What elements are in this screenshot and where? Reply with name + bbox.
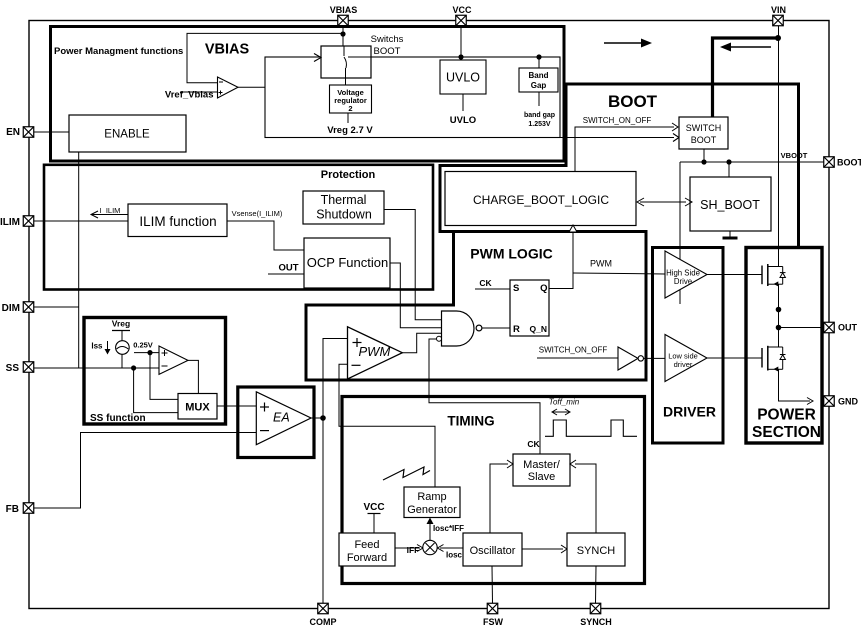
svg-text:Slave: Slave bbox=[528, 471, 556, 483]
svg-text:SWITCH_ON_OFF: SWITCH_ON_OFF bbox=[539, 346, 608, 355]
svg-text:OCP Function: OCP Function bbox=[307, 255, 388, 270]
svg-text:TIMING: TIMING bbox=[447, 414, 494, 429]
svg-text:S: S bbox=[513, 283, 519, 294]
svg-text:PWM: PWM bbox=[359, 344, 391, 359]
svg-text:COMP: COMP bbox=[310, 617, 337, 627]
svg-text:ILIM: ILIM bbox=[0, 217, 20, 228]
svg-text:Power Managment functions: Power Managment functions bbox=[54, 46, 183, 57]
svg-text:R: R bbox=[513, 324, 520, 335]
svg-text:BOOT: BOOT bbox=[608, 92, 658, 111]
svg-text:VBOOT: VBOOT bbox=[781, 151, 808, 160]
svg-text:Drive: Drive bbox=[674, 277, 692, 286]
svg-text:EN: EN bbox=[6, 127, 20, 138]
svg-text:UVLO: UVLO bbox=[446, 71, 480, 85]
svg-text:POWER: POWER bbox=[757, 407, 816, 424]
svg-text:Feed: Feed bbox=[354, 539, 379, 551]
svg-text:Q: Q bbox=[540, 283, 547, 294]
svg-text:band gap: band gap bbox=[524, 112, 555, 119]
svg-text:FSW: FSW bbox=[483, 617, 504, 627]
svg-text:OUT: OUT bbox=[278, 263, 298, 274]
svg-text:OUT: OUT bbox=[838, 323, 858, 333]
svg-text:VIN: VIN bbox=[771, 5, 786, 15]
svg-text:SS function: SS function bbox=[90, 413, 146, 424]
svg-text:Vreg 2.7 V: Vreg 2.7 V bbox=[327, 125, 373, 136]
svg-text:SWITCH_ON_OFF: SWITCH_ON_OFF bbox=[583, 116, 652, 125]
svg-text:driver: driver bbox=[674, 360, 693, 369]
svg-text:1.253V: 1.253V bbox=[528, 121, 551, 128]
svg-text:DIM: DIM bbox=[2, 303, 20, 314]
svg-text:Protection: Protection bbox=[321, 169, 376, 181]
svg-text:2: 2 bbox=[348, 104, 352, 113]
svg-text:EA: EA bbox=[273, 411, 290, 425]
svg-text:Vsense(I_ILIM): Vsense(I_ILIM) bbox=[232, 209, 283, 218]
svg-text:Toff_min: Toff_min bbox=[549, 398, 580, 407]
svg-text:ENABLE: ENABLE bbox=[104, 129, 150, 141]
svg-text:SYNCH: SYNCH bbox=[580, 617, 612, 627]
svg-text:MUX: MUX bbox=[185, 402, 210, 414]
svg-text:UVLO: UVLO bbox=[450, 115, 476, 126]
svg-text:CK: CK bbox=[527, 439, 540, 449]
svg-text:Switchs: Switchs bbox=[371, 34, 404, 45]
svg-text:SWITCH: SWITCH bbox=[686, 123, 722, 133]
svg-text:Forward: Forward bbox=[347, 552, 387, 564]
svg-text:PWM: PWM bbox=[590, 259, 612, 269]
svg-text:Iosc*IFF: Iosc*IFF bbox=[433, 524, 464, 533]
svg-text:Vref_Vbias: Vref_Vbias bbox=[165, 90, 214, 101]
svg-text:VBIAS: VBIAS bbox=[330, 5, 358, 15]
svg-text:Ramp: Ramp bbox=[417, 491, 446, 503]
svg-text:CK: CK bbox=[479, 278, 492, 288]
svg-text:GND: GND bbox=[838, 397, 859, 407]
svg-text:ILIM function: ILIM function bbox=[139, 214, 216, 229]
svg-text:BOOT: BOOT bbox=[691, 135, 717, 145]
svg-text:Band: Band bbox=[529, 71, 549, 80]
svg-text:Q_N: Q_N bbox=[530, 324, 547, 334]
svg-text:BOOT: BOOT bbox=[837, 158, 861, 168]
svg-text:SH_BOOT: SH_BOOT bbox=[700, 198, 760, 212]
svg-text:Oscillator: Oscillator bbox=[470, 545, 516, 557]
svg-text:0.25V: 0.25V bbox=[133, 341, 153, 350]
svg-text:DRIVER: DRIVER bbox=[663, 404, 716, 420]
svg-text:Gap: Gap bbox=[531, 81, 547, 90]
svg-text:BOOT: BOOT bbox=[374, 46, 401, 57]
svg-text:FB: FB bbox=[6, 504, 19, 515]
svg-text:VBIAS: VBIAS bbox=[205, 42, 250, 58]
svg-text:SS: SS bbox=[6, 363, 20, 374]
svg-text:SYNCH: SYNCH bbox=[577, 545, 616, 557]
svg-text:Iosc: Iosc bbox=[446, 551, 463, 560]
svg-text:VCC: VCC bbox=[452, 5, 472, 15]
svg-text:IFF: IFF bbox=[407, 545, 420, 555]
svg-text:SECTION: SECTION bbox=[752, 424, 821, 441]
svg-text:I_ILIM: I_ILIM bbox=[100, 206, 121, 215]
svg-text:Master/: Master/ bbox=[523, 459, 561, 471]
svg-text:VCC: VCC bbox=[363, 502, 384, 513]
svg-text:Thermal: Thermal bbox=[321, 193, 367, 207]
svg-text:PWM LOGIC: PWM LOGIC bbox=[470, 246, 552, 262]
svg-text:Shutdown: Shutdown bbox=[316, 208, 372, 222]
svg-text:Vreg: Vreg bbox=[112, 319, 130, 329]
svg-text:Iss: Iss bbox=[91, 342, 103, 351]
svg-text:Generator: Generator bbox=[407, 504, 457, 516]
svg-text:CHARGE_BOOT_LOGIC: CHARGE_BOOT_LOGIC bbox=[473, 193, 609, 207]
